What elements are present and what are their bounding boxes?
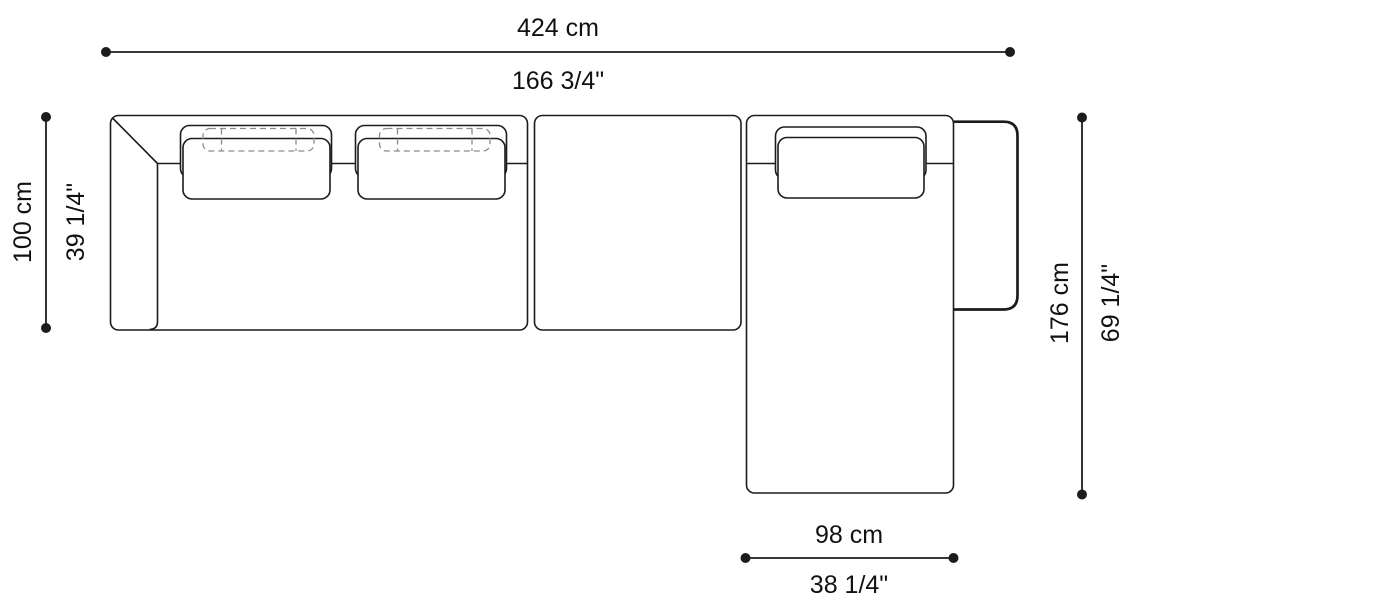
chaise-width-dim-endpoint-right bbox=[949, 553, 959, 563]
dimension-chaise-width: 98 cm 38 1/4" bbox=[741, 521, 959, 599]
dimension-depth: 100 cm 39 1/4" bbox=[9, 112, 90, 333]
technical-drawing-page: 424 cm 166 3/4" 100 cm 39 1/4" 176 cm 69… bbox=[0, 0, 1400, 606]
dimension-overall-width: 424 cm 166 3/4" bbox=[101, 14, 1015, 95]
depth-metric-label: 100 cm bbox=[9, 181, 37, 263]
chaise-back-cushion-front bbox=[778, 138, 924, 199]
back-cushion-1 bbox=[181, 126, 332, 200]
depth-dim-endpoint-bottom bbox=[41, 323, 51, 333]
sofa-top-view-drawing: 424 cm 166 3/4" 100 cm 39 1/4" 176 cm 69… bbox=[0, 0, 1400, 606]
overall-width-dim-endpoint-right bbox=[1005, 47, 1015, 57]
chaise-length-dim-endpoint-top bbox=[1077, 113, 1087, 123]
back-cushion-1-front bbox=[183, 139, 330, 200]
side-panel bbox=[954, 122, 1018, 310]
chaise-back-cushion bbox=[776, 127, 927, 198]
chaise-width-metric-label: 98 cm bbox=[815, 521, 883, 549]
depth-imperial-label: 39 1/4" bbox=[62, 183, 90, 261]
dimension-chaise-length: 176 cm 69 1/4" bbox=[1046, 113, 1125, 500]
back-cushion-2 bbox=[356, 126, 507, 200]
chaise-width-imperial-label: 38 1/4" bbox=[810, 571, 888, 599]
chaise-width-dim-endpoint-left bbox=[741, 553, 751, 563]
overall-width-dim-endpoint-left bbox=[101, 47, 111, 57]
middle-section-body bbox=[535, 116, 742, 331]
chaise-length-dim-endpoint-bottom bbox=[1077, 490, 1087, 500]
chaise-length-imperial-label: 69 1/4" bbox=[1097, 264, 1125, 342]
depth-dim-endpoint-top bbox=[41, 112, 51, 122]
overall-width-imperial-label: 166 3/4" bbox=[512, 67, 604, 95]
chaise-length-metric-label: 176 cm bbox=[1046, 262, 1074, 344]
overall-width-metric-label: 424 cm bbox=[517, 14, 599, 42]
sofa-plan bbox=[111, 116, 1018, 494]
